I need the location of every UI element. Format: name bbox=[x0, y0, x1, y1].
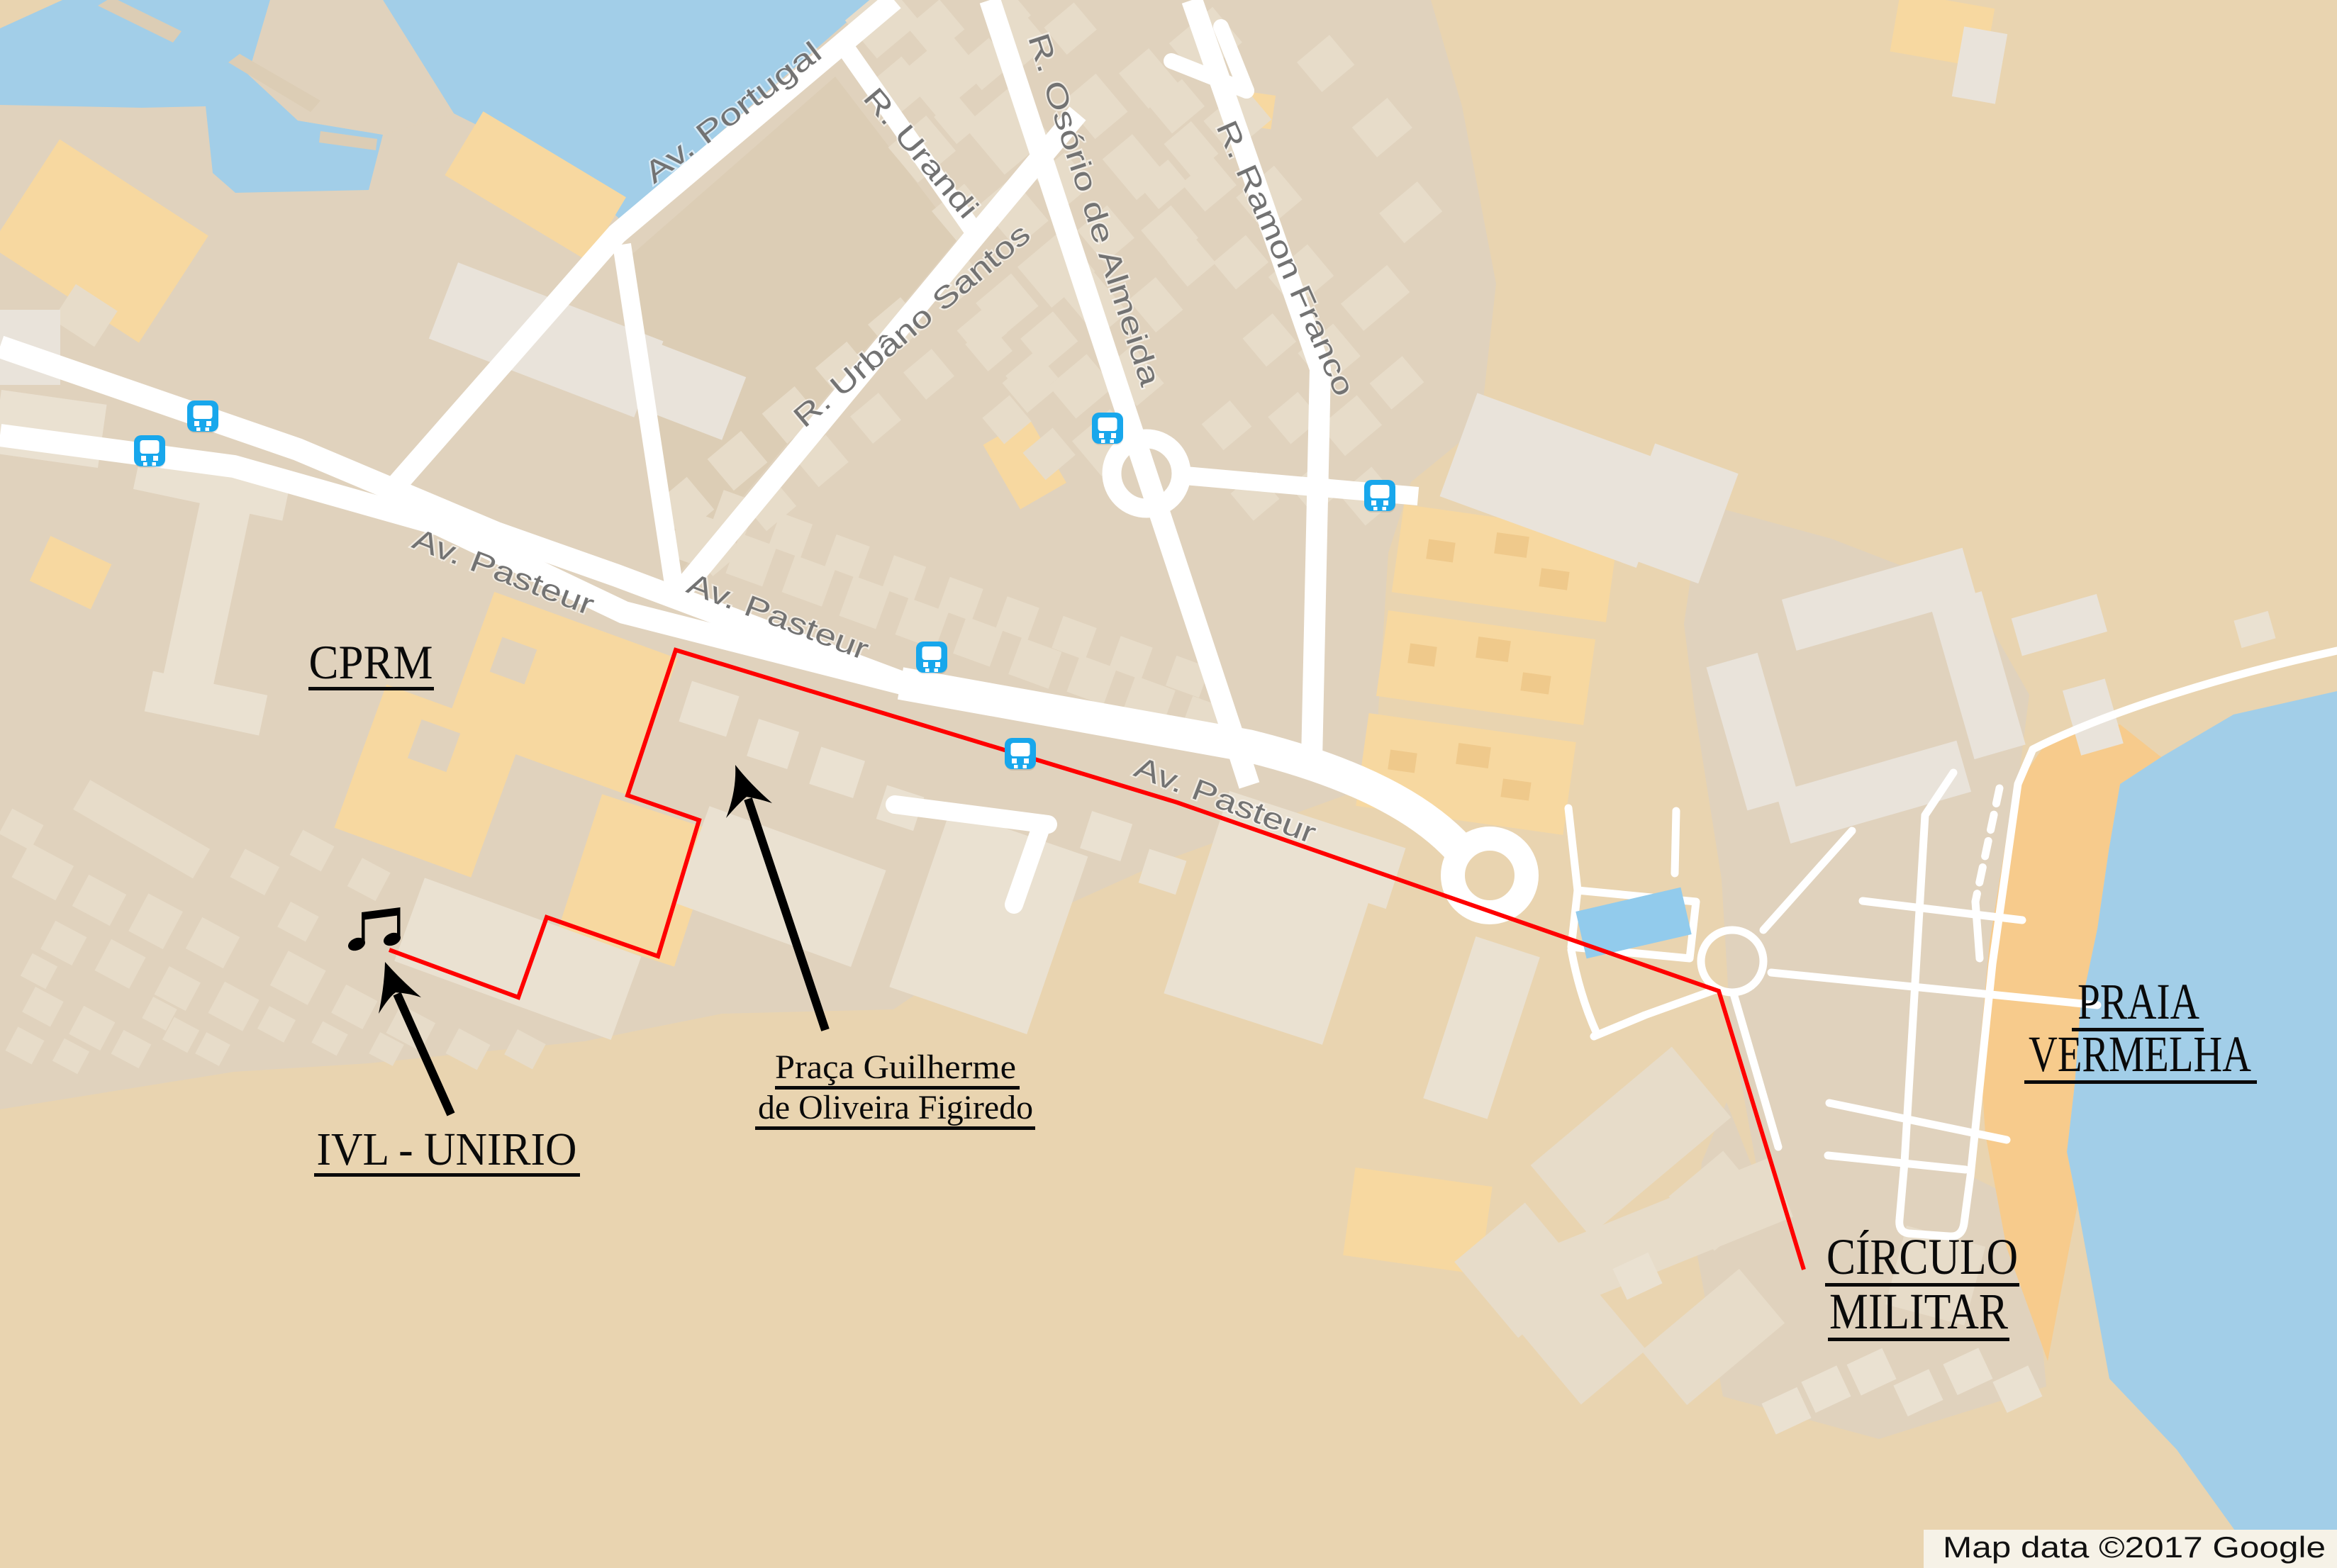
svg-text:Map data ©2017 Google: Map data ©2017 Google bbox=[1943, 1530, 2326, 1564]
svg-text:MILITAR: MILITAR bbox=[1829, 1283, 2008, 1340]
svg-text:Praça Guilherme: Praça Guilherme bbox=[775, 1048, 1016, 1086]
svg-text:VERMELHA: VERMELHA bbox=[2029, 1026, 2251, 1082]
svg-text:CPRM: CPRM bbox=[309, 635, 433, 689]
svg-text:de Oliveira Figiredo: de Oliveira Figiredo bbox=[758, 1089, 1033, 1126]
svg-text:PRAIA: PRAIA bbox=[2077, 973, 2199, 1030]
svg-text:CÍRCULO: CÍRCULO bbox=[1826, 1228, 2018, 1285]
svg-text:IVL - UNIRIO: IVL - UNIRIO bbox=[317, 1124, 577, 1175]
